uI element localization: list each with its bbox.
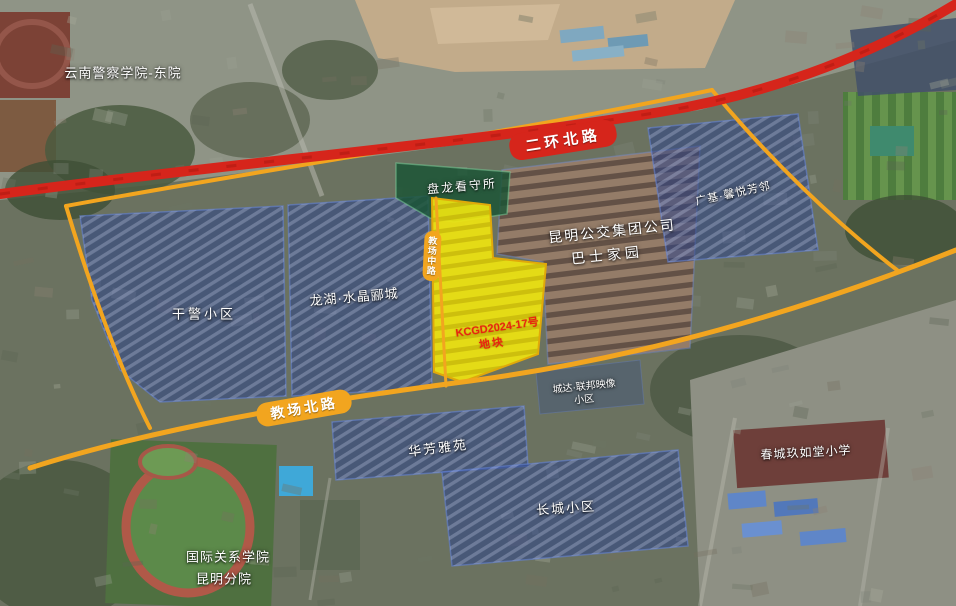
satellite-planning-map: 云南警察学院-东院 二环北路 盘龙看守所 教场中路 昆明公交集团公司 巴士家园 … <box>0 0 956 606</box>
label-vertical-road: 教场中路 <box>422 231 442 282</box>
map-canvas <box>0 0 956 606</box>
